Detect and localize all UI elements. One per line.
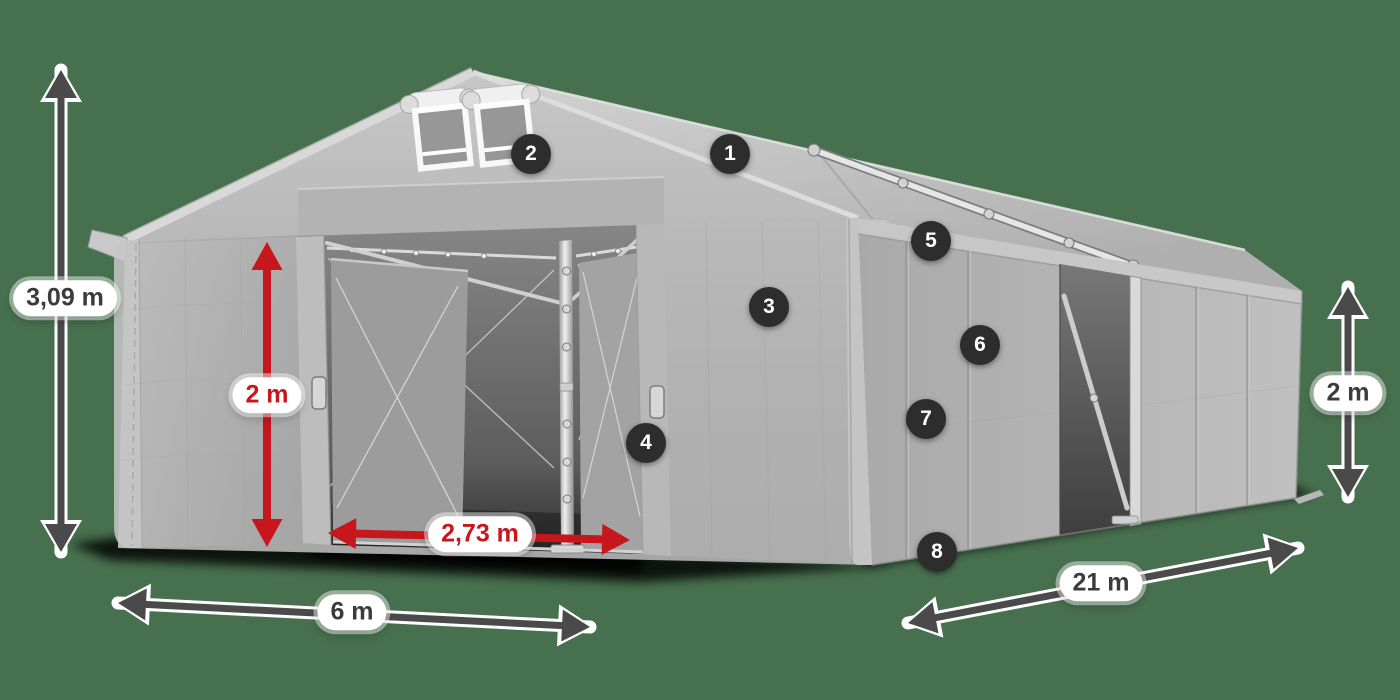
badge-5[interactable]: 5	[911, 221, 951, 261]
badge-2[interactable]: 2	[511, 134, 551, 174]
badge-1[interactable]: 1	[710, 134, 750, 174]
dimension-label-door-height: 2 m	[232, 377, 301, 413]
dimension-label-total-height: 3,09 m	[13, 280, 117, 316]
badge-7[interactable]: 7	[906, 399, 946, 439]
dimension-label-side-height: 2 m	[1313, 375, 1382, 411]
badge-8[interactable]: 8	[917, 532, 957, 572]
badge-3[interactable]: 3	[749, 287, 789, 327]
annotation-overlay: 3,09 m2 m2,73 m6 m21 m2 m12345678	[0, 0, 1400, 700]
tent-dimension-diagram: 3,09 m2 m2,73 m6 m21 m2 m12345678	[0, 0, 1400, 700]
dimension-label-side-length: 21 m	[1060, 565, 1143, 601]
dimension-label-front-width: 6 m	[317, 594, 386, 630]
badge-4[interactable]: 4	[626, 423, 666, 463]
dimension-label-door-width: 2,73 m	[428, 516, 532, 552]
badge-6[interactable]: 6	[960, 325, 1000, 365]
